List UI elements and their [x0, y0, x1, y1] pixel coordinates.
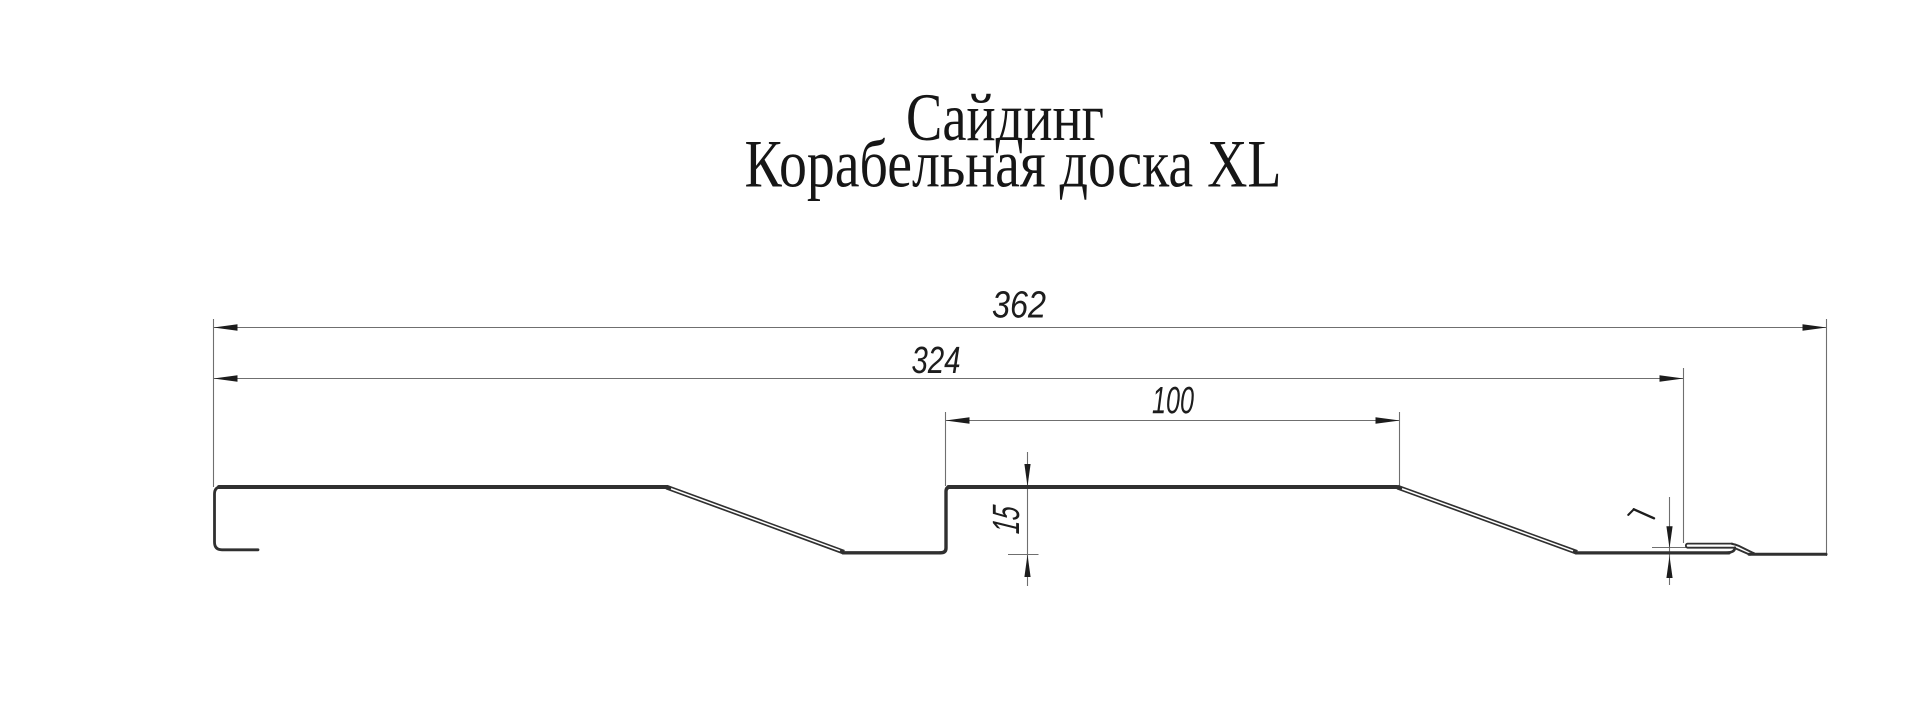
svg-text:Корабельная доска XL: Корабельная доска XL	[745, 126, 1282, 202]
